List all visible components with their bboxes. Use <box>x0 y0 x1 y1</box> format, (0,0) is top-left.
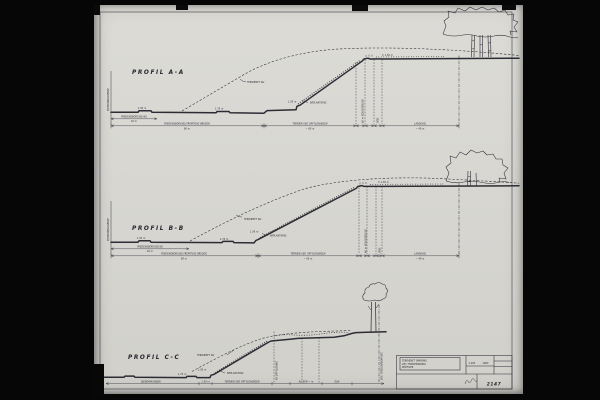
slope-crest-marks-b <box>360 182 366 184</box>
mark-a-4: ± 1.50 m <box>382 54 393 57</box>
signature-scribble <box>465 379 478 384</box>
trees-icon-a <box>443 7 518 59</box>
label-planting-c: BEPLANTNING <box>227 372 244 375</box>
dim-roadnow-label-b: FREDENSBORGVEJ NU <box>137 246 163 249</box>
scan-mark-top-1 <box>176 5 188 10</box>
sheet-frame <box>100 12 512 389</box>
profile-c-title: PROFIL C-C <box>128 355 180 361</box>
label-planting-b: BEPLANTNING <box>270 235 287 238</box>
mark-a-2: 1.70 m <box>215 108 223 111</box>
dim-landevej-value-a: ~ 40 m <box>416 127 425 130</box>
dim-fill-label-b: TERRÆN VED OPFYLDNINGEN <box>291 252 326 255</box>
slope-crest-marks-a <box>366 55 372 57</box>
projection-dashed-lines-a <box>356 60 382 125</box>
dim-label-c-3: TERRÆN VED OPFYLDNINGEN <box>225 380 260 383</box>
tall-tree-icon-c <box>363 283 388 333</box>
scan-mark-left <box>94 5 100 15</box>
mark-c-2: 1.70 m <box>178 373 186 376</box>
mark-b-1: 1.50 m <box>137 237 145 240</box>
dim-fill-label-a: TERRÆN VED OPFYLDNINGEN <box>293 122 328 125</box>
scan-corner-tab <box>92 364 104 398</box>
profile-a: PROFIL A-A TERRÆNET NU BEPLANTNING 1.50 … <box>107 7 519 130</box>
dim-landevej-value-b: ~ 40 m <box>416 257 425 260</box>
mark-a-1: 1.50 m <box>138 107 146 110</box>
dim-future-value-a: 80 m <box>184 127 190 130</box>
label-planting-a: BEPLANTNING <box>310 102 327 105</box>
profile-a-title: PROFIL A-A <box>132 70 185 76</box>
title-block-line3: PROFILER <box>402 366 414 369</box>
title-block: TERRÆNET OMKRING VEJ I FREDENSBORG PROFI… <box>397 356 513 390</box>
scan-mark-top-3 <box>502 5 516 10</box>
profile-c: PROFIL C-C TERRÆNET NU BEPLANTNING 1.50 … <box>102 283 388 386</box>
dim-roadnow-value-a: 40 m <box>131 120 137 123</box>
leader-planting-c <box>220 371 225 373</box>
dim-label-c-4: ALLEEN ~ m <box>298 380 314 383</box>
label-boundary-b: EJENDOMSGRÆNSE <box>107 218 110 241</box>
slope-hatching-a <box>298 61 360 105</box>
terrain-line-a <box>111 58 519 113</box>
dim-future-value-b: 80 m <box>181 257 187 260</box>
label-skel-a: SKEL <box>377 116 380 123</box>
scan-mark-top-2 <box>352 5 368 11</box>
mark-b-3: 1.50 m <box>250 231 258 234</box>
date-value: 1963 <box>483 362 489 365</box>
label-widening-b: 60 m VEJUDVIDELSE <box>365 228 368 253</box>
dim-fill-value-b: ~ 60 m <box>304 257 313 260</box>
profile-b: PROFIL B-B TERRÆNET NU BEPLANTNING 1.50 … <box>107 150 519 260</box>
label-widening-a: 60 m VEJUDVIDELSE <box>362 98 365 123</box>
scanned-drawing-photo: PROFIL A-A TERRÆNET NU BEPLANTNING 1.50 … <box>0 0 600 400</box>
drawing-canvas: PROFIL A-A TERRÆNET NU BEPLANTNING 1.50 … <box>94 5 523 394</box>
profile-b-title: PROFIL B-B <box>132 226 185 232</box>
projection-dashed-lines-b <box>359 187 382 255</box>
dim-landevej-label-b: LANDEVEJ <box>414 252 426 255</box>
dim-future-label-b: FREDENSBORGVEJ FREMTIDIG BREDDE <box>161 252 207 255</box>
original-terrain-dashed-a <box>182 48 519 111</box>
drawing-number: 2147 <box>487 382 502 388</box>
mark-b-4: ± 1.50 m <box>378 181 389 184</box>
dim-roadnow-value-b: 40 m <box>147 250 153 253</box>
label-skel-b: SKEL <box>379 246 382 253</box>
dim-roadnow-label-a: FREDENSBORGVEJ NU <box>121 116 147 119</box>
mark-b-2: 1.70 m <box>220 238 228 241</box>
label-terrain-now-a: TERRÆNET NU <box>247 81 265 84</box>
label-rot1-c: NY OPFYLDNING <box>276 361 279 380</box>
dim-landevej-label-a: LANDEVEJ <box>414 122 426 125</box>
dim-label-c-1: EJENDOMSVEJEN <box>141 380 161 383</box>
mark-a-3: 1.50 m <box>288 101 296 104</box>
leader-terrain-now-c <box>227 350 234 355</box>
dim-label-c-2: 1.50 m <box>201 380 209 383</box>
scale-value: 1:200 <box>469 362 476 365</box>
dim-label-c-5: ELM <box>335 380 340 383</box>
label-terrain-now-b: TERRÆNET NU <box>244 218 262 221</box>
label-rot2-c: EKS. FREDENSBORGVEJ <box>381 352 384 380</box>
mark-c-1: 1.50 m <box>198 369 206 372</box>
plateau-scrub-c <box>274 332 349 336</box>
terrain-line-b <box>111 186 519 243</box>
label-terrain-now-c: TERRÆNET NU <box>197 354 215 357</box>
original-terrain-dashed-b <box>190 178 519 241</box>
plateau-grass-b <box>370 184 444 185</box>
dim-fill-value-a: ~ 60 m <box>306 127 315 130</box>
label-boundary-a: EJENDOMSGRÆNSE <box>107 88 110 111</box>
slope-hatching-b <box>260 188 354 238</box>
dim-future-label-a: FREDENSBORGVEJ FREMTIDIG BREDDE <box>164 122 210 125</box>
slope-hatching-c <box>215 341 267 373</box>
drawing-sheet: PROFIL A-A TERRÆNET NU BEPLANTNING 1.50 … <box>94 5 523 394</box>
leader-terrain-now-a <box>240 79 246 82</box>
